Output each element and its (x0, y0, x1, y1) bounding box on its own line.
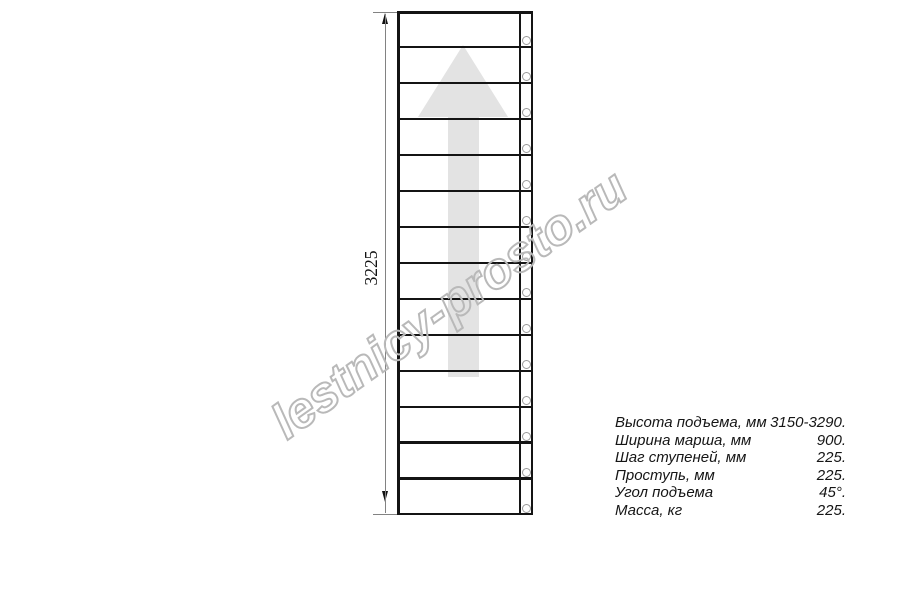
spec-row: Ширина марша, мм 900. (615, 432, 846, 450)
spec-value: 45°. (819, 484, 846, 502)
screw-circle (522, 360, 531, 369)
specs-table: Высота подъема, мм 3150-3290. Ширина мар… (615, 414, 846, 520)
step-line (397, 298, 533, 300)
stair-plan-drawing: 3225 lestnicy-prosto.ru Высота подъема, … (0, 0, 900, 600)
spec-label: Высота подъема, мм (615, 414, 767, 432)
screw-circle (522, 180, 531, 189)
screw-circle (522, 432, 531, 441)
spec-value: 225. (817, 502, 846, 520)
spec-label: Шаг ступеней, мм (615, 449, 746, 467)
flight-border-bottom (397, 513, 533, 516)
step-line (397, 370, 533, 372)
screw-circle (522, 468, 531, 477)
screw-circle (522, 396, 531, 405)
step-line (397, 118, 533, 120)
spec-label: Ширина марша, мм (615, 432, 751, 450)
step-line (397, 406, 533, 408)
screw-circle (522, 36, 531, 45)
step-line (397, 82, 533, 84)
spec-row: Высота подъема, мм 3150-3290. (615, 414, 846, 432)
spec-value: 3150-3290. (770, 414, 846, 432)
spec-value: 225. (817, 467, 846, 485)
step-line (397, 226, 533, 228)
spec-value: 900. (817, 432, 846, 450)
spec-row: Проступь, мм 225. (615, 467, 846, 485)
screw-circle (522, 108, 531, 117)
screw-circle (522, 504, 531, 513)
step-line (397, 190, 533, 192)
step-line (397, 477, 533, 479)
screw-circle (522, 324, 531, 333)
spec-row: Шаг ступеней, мм 225. (615, 449, 846, 467)
spec-value: 225. (817, 449, 846, 467)
dimension-extension-bottom (373, 514, 399, 515)
stair-flight-drawing (397, 11, 533, 515)
spec-label: Проступь, мм (615, 467, 715, 485)
step-line (397, 46, 533, 48)
step-line (397, 154, 533, 156)
spec-row: Масса, кг 225. (615, 502, 846, 520)
step-line (397, 441, 533, 443)
step-line (397, 334, 533, 336)
flight-border-top (397, 11, 533, 14)
screw-circle (522, 252, 531, 261)
screw-circle (522, 216, 531, 225)
screw-circle (522, 72, 531, 81)
screw-circle (522, 288, 531, 297)
screw-circle (522, 144, 531, 153)
dimension-line (385, 14, 386, 513)
spec-label: Угол подъема (615, 484, 713, 502)
spec-label: Масса, кг (615, 502, 682, 520)
dimension-label: 3225 (362, 238, 380, 298)
spec-row: Угол подъема 45°. (615, 484, 846, 502)
step-line (397, 262, 533, 264)
